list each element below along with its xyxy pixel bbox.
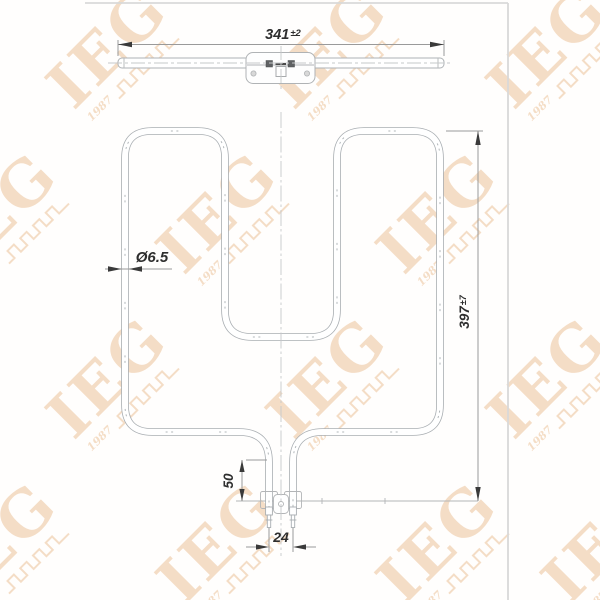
- terminal-bracket: [261, 492, 386, 514]
- arrow-right-icon: [108, 266, 122, 271]
- pin-right: [291, 515, 294, 528]
- pin-collar-right: [290, 507, 297, 515]
- dimension-tube-diameter: Ø6.5: [105, 249, 172, 272]
- arrow-up-icon: [475, 131, 480, 145]
- tube-bore: [125, 131, 440, 508]
- arrow-up-icon: [239, 460, 244, 472]
- bracket-screw-left: [266, 61, 273, 68]
- arrow-down-icon: [239, 489, 244, 501]
- technical-drawing-page: IEG1987IEG1987IEG1987IEG1987IEG1987IEG19…: [0, 0, 600, 600]
- dimension-overall-height-label: 397±7: [457, 294, 472, 328]
- arrow-right-icon: [256, 544, 269, 549]
- bracket-screw-right: [288, 61, 295, 68]
- front-view: Ø6.5 397±7 50: [105, 46, 483, 556]
- bracket-hole-left: [251, 71, 256, 76]
- bracket-hole-right: [304, 71, 309, 76]
- heating-element-drawing: 341±2: [0, 0, 600, 600]
- dimension-top-width-label: 341±2: [265, 27, 301, 43]
- tube-axis-marks: [125, 131, 440, 508]
- heating-tube: [125, 131, 440, 508]
- dimension-terminal-length-label: 50: [221, 473, 236, 489]
- arrow-left-icon: [118, 42, 132, 47]
- pin-collar-left: [266, 507, 273, 515]
- dimension-overall-height: 397±7: [446, 131, 483, 501]
- arrow-left-icon: [293, 544, 306, 549]
- dimension-tube-diameter-label: Ø6.5: [136, 249, 169, 266]
- top-view: 341±2: [108, 27, 453, 84]
- pin-left: [267, 515, 270, 528]
- dimension-terminal-spacing-label: 24: [272, 529, 289, 545]
- tube-outer-wall: [125, 131, 440, 508]
- arrow-right-icon: [430, 42, 444, 47]
- mounting-bracket-top-view: [246, 53, 315, 84]
- arrow-left-icon: [129, 266, 142, 271]
- arrow-down-icon: [475, 487, 480, 501]
